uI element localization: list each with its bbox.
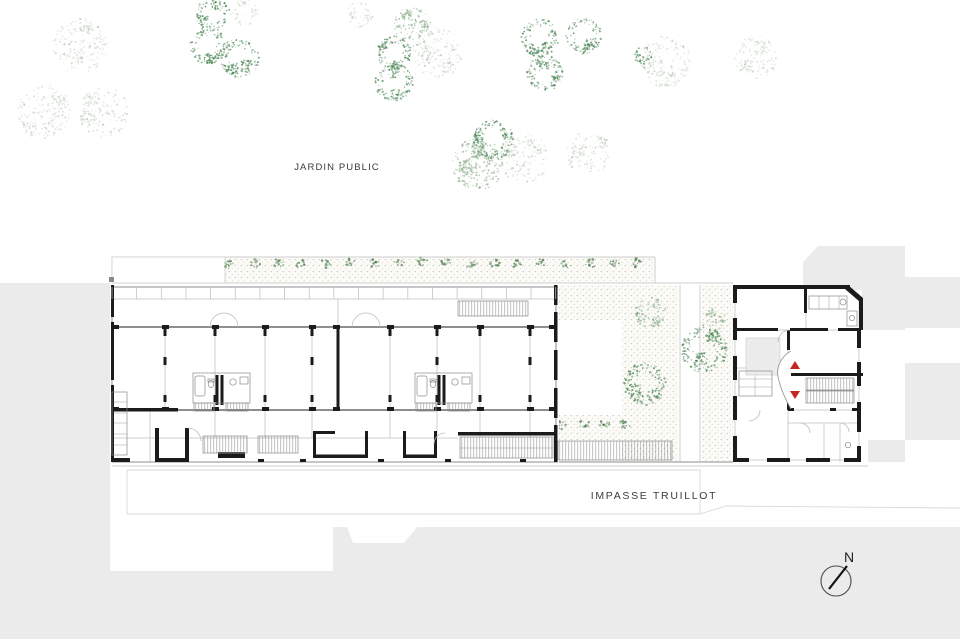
main-building-plan [111, 285, 559, 463]
annex-building-plan [733, 285, 863, 462]
public-garden-label: JARDIN PUBLIC [294, 162, 380, 173]
street-label: IMPASSE TRUILLOT [591, 490, 718, 502]
north-label: N [844, 549, 854, 565]
site-plan-drawing: JARDIN PUBLIC IMPASSE TRUILLOT N [0, 0, 960, 639]
site-plan-page: JARDIN PUBLIC IMPASSE TRUILLOT N [0, 0, 960, 639]
